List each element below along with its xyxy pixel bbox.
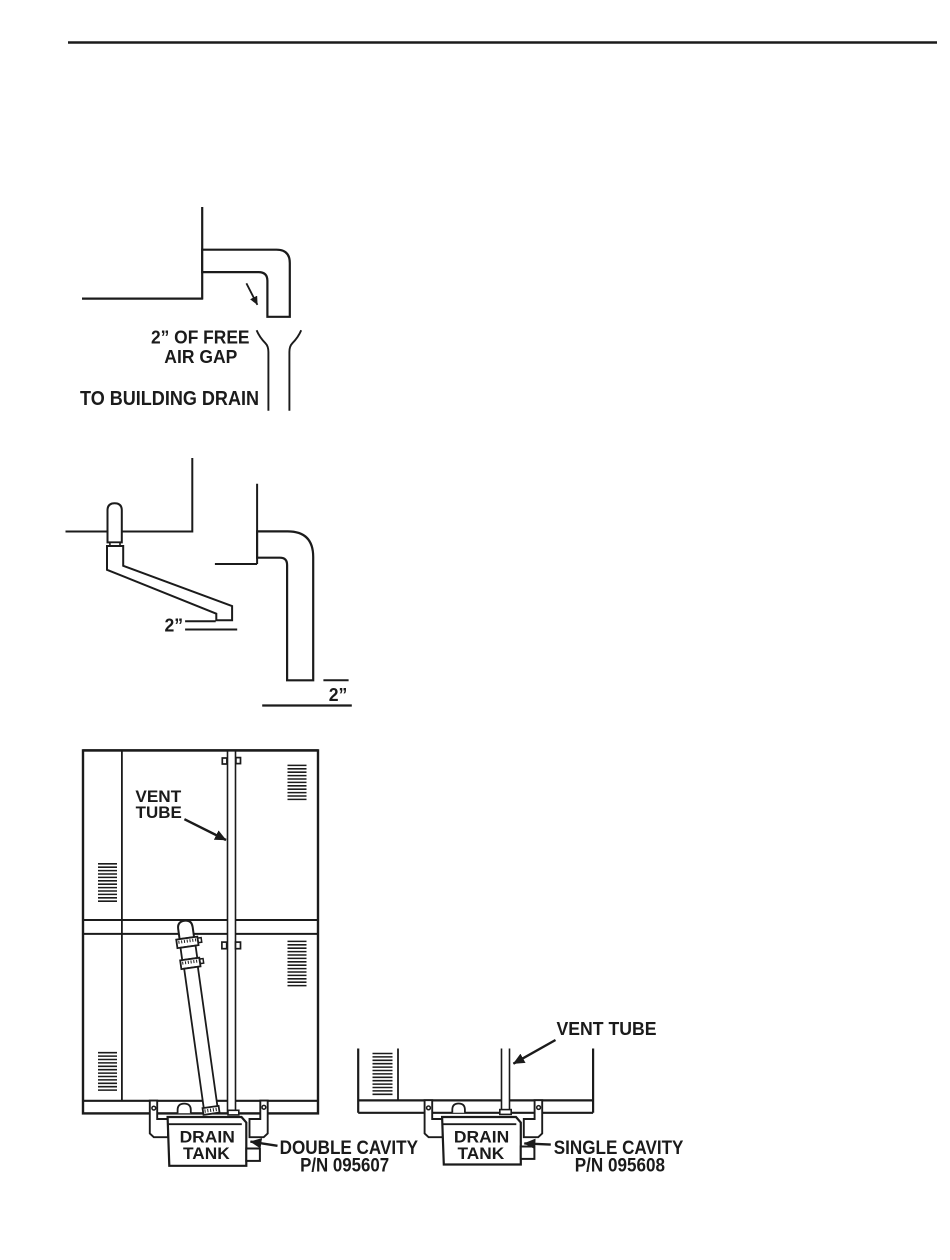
svg-text:TANK: TANK <box>183 1145 230 1163</box>
svg-text:P/N 095607: P/N 095607 <box>300 1155 389 1176</box>
svg-text:2” OF FREE: 2” OF FREE <box>151 328 250 348</box>
svg-text:DRAIN: DRAIN <box>180 1129 235 1147</box>
svg-text:P/N 095608: P/N 095608 <box>575 1156 665 1177</box>
svg-text:AIR GAP: AIR GAP <box>164 346 237 367</box>
svg-text:TANK: TANK <box>458 1145 505 1163</box>
svg-text:VENT TUBE: VENT TUBE <box>557 1019 657 1039</box>
svg-text:2”: 2” <box>165 616 184 636</box>
svg-text:TO BUILDING DRAIN: TO BUILDING DRAIN <box>80 388 259 410</box>
svg-text:DRAIN: DRAIN <box>454 1129 509 1147</box>
svg-text:2”: 2” <box>329 684 348 705</box>
svg-text:TUBE: TUBE <box>136 804 182 822</box>
